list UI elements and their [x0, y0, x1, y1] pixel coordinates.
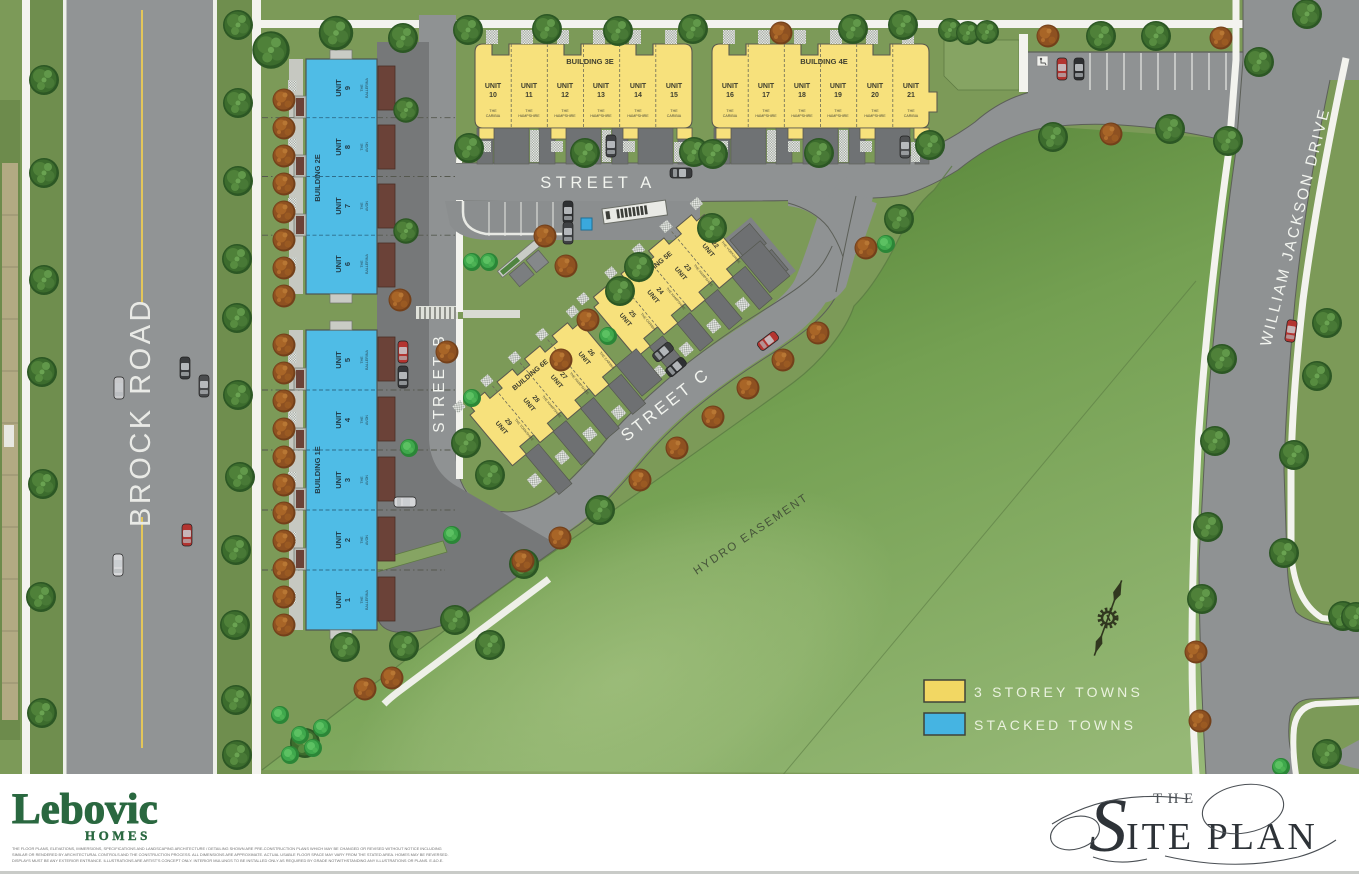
- svg-text:18: 18: [798, 92, 806, 99]
- svg-text:7: 7: [343, 204, 352, 208]
- svg-text:UNIT: UNIT: [630, 83, 647, 90]
- svg-text:THE: THE: [360, 84, 364, 92]
- svg-text:11: 11: [525, 92, 533, 99]
- svg-text:UNIT: UNIT: [593, 83, 610, 90]
- svg-text:10: 10: [489, 92, 497, 99]
- svg-text:13: 13: [597, 92, 605, 99]
- svg-text:THE: THE: [360, 416, 364, 424]
- svg-text:21: 21: [907, 92, 915, 99]
- svg-text:HOMES: HOMES: [85, 828, 151, 843]
- svg-text:14: 14: [634, 92, 642, 99]
- svg-text:ITE PLAN: ITE PLAN: [1126, 816, 1318, 858]
- svg-text:THE: THE: [360, 536, 364, 544]
- svg-text:15: 15: [670, 92, 678, 99]
- svg-text:THE: THE: [561, 109, 569, 113]
- svg-text:UNIT: UNIT: [334, 138, 343, 156]
- svg-text:UNIT: UNIT: [334, 411, 343, 429]
- svg-text:THE: THE: [907, 109, 915, 113]
- svg-text:3: 3: [343, 478, 352, 482]
- svg-text:THE: THE: [597, 109, 605, 113]
- svg-text:HAMPSHIRE: HAMPSHIRE: [827, 114, 849, 118]
- svg-text:THE: THE: [871, 109, 879, 113]
- svg-text:THE: THE: [489, 109, 497, 113]
- svg-text:THE: THE: [360, 143, 364, 151]
- svg-text:8: 8: [343, 145, 352, 149]
- svg-text:BALLERINA: BALLERINA: [365, 590, 369, 610]
- svg-text:12: 12: [561, 92, 569, 99]
- svg-text:BALLERINA: BALLERINA: [365, 78, 369, 98]
- svg-text:HAMPSHIRE: HAMPSHIRE: [590, 114, 612, 118]
- svg-text:20: 20: [871, 92, 879, 99]
- svg-text:UNIT: UNIT: [485, 83, 502, 90]
- svg-text:UNIT: UNIT: [334, 351, 343, 369]
- svg-text:THE: THE: [1153, 791, 1199, 807]
- svg-text:UNIT: UNIT: [758, 83, 775, 90]
- svg-text:THE: THE: [360, 202, 364, 210]
- svg-text:AVON: AVON: [365, 475, 369, 485]
- svg-text:CARIBIA: CARIBIA: [667, 114, 682, 118]
- svg-text:16: 16: [726, 92, 734, 99]
- svg-text:AVON: AVON: [365, 201, 369, 211]
- svg-text:UNIT: UNIT: [903, 83, 920, 90]
- svg-text:THE: THE: [670, 109, 678, 113]
- svg-text:BUILDING 3E: BUILDING 3E: [566, 57, 614, 66]
- svg-text:17: 17: [762, 92, 770, 99]
- svg-text:UNIT: UNIT: [521, 83, 538, 90]
- svg-text:BUILDING 4E: BUILDING 4E: [800, 57, 848, 66]
- svg-text:THE: THE: [762, 109, 770, 113]
- svg-text:THE: THE: [634, 109, 642, 113]
- svg-text:BALLERINA: BALLERINA: [365, 350, 369, 370]
- svg-text:UNIT: UNIT: [334, 531, 343, 549]
- svg-text:UNIT: UNIT: [867, 83, 884, 90]
- svg-text:S: S: [1089, 784, 1127, 868]
- svg-text:AVON: AVON: [365, 142, 369, 152]
- svg-text:CARIBIA: CARIBIA: [486, 114, 501, 118]
- svg-text:HAMPSHIRE: HAMPSHIRE: [791, 114, 813, 118]
- svg-text:BUILDING 2E: BUILDING 2E: [313, 154, 322, 202]
- svg-text:DISPLAYS MUST BE ANY EXTERIOR: DISPLAYS MUST BE ANY EXTERIOR ENTRANCE. …: [12, 858, 443, 863]
- svg-text:SIMILAR OR RENDERED BY ARCHITE: SIMILAR OR RENDERED BY ARCHITECTURAL CON…: [12, 852, 449, 857]
- svg-text:HAMPSHIRE: HAMPSHIRE: [755, 114, 777, 118]
- svg-text:9: 9: [343, 86, 352, 90]
- svg-text:UNIT: UNIT: [794, 83, 811, 90]
- svg-text:Lebovic: Lebovic: [12, 786, 158, 833]
- svg-text:UNIT: UNIT: [557, 83, 574, 90]
- svg-text:THE: THE: [798, 109, 806, 113]
- svg-text:6: 6: [343, 262, 352, 266]
- svg-text:UNIT: UNIT: [334, 197, 343, 215]
- svg-text:UNIT: UNIT: [722, 83, 739, 90]
- svg-text:BROCK ROAD: BROCK ROAD: [125, 297, 157, 527]
- svg-text:HAMPSHIRE: HAMPSHIRE: [554, 114, 576, 118]
- svg-text:BUILDING 1E: BUILDING 1E: [313, 446, 322, 494]
- svg-text:THE: THE: [360, 260, 364, 268]
- svg-text:AVON: AVON: [365, 535, 369, 545]
- svg-text:2: 2: [343, 538, 352, 542]
- svg-text:THE FLOOR PLANS, ELEVATIONS, I: THE FLOOR PLANS, ELEVATIONS, IMMERSIONS,…: [12, 846, 442, 851]
- svg-text:AVON: AVON: [365, 415, 369, 425]
- svg-text:UNIT: UNIT: [666, 83, 683, 90]
- svg-text:THE: THE: [360, 476, 364, 484]
- svg-text:HAMPSHIRE: HAMPSHIRE: [518, 114, 540, 118]
- svg-text:BALLERINA: BALLERINA: [365, 254, 369, 274]
- svg-text:STREET A: STREET A: [540, 174, 655, 192]
- svg-text:CARIBIA: CARIBIA: [904, 114, 919, 118]
- svg-text:UNIT: UNIT: [334, 255, 343, 273]
- svg-text:UNIT: UNIT: [334, 471, 343, 489]
- svg-text:UNIT: UNIT: [334, 79, 343, 97]
- svg-text:THE: THE: [360, 356, 364, 364]
- svg-text:1: 1: [343, 598, 352, 602]
- svg-text:THE: THE: [360, 596, 364, 604]
- svg-text:UNIT: UNIT: [830, 83, 847, 90]
- svg-text:19: 19: [834, 92, 842, 99]
- svg-text:5: 5: [343, 358, 352, 362]
- svg-text:CARIBIA: CARIBIA: [723, 114, 738, 118]
- svg-text:THE: THE: [525, 109, 533, 113]
- svg-text:3 STOREY TOWNS: 3 STOREY TOWNS: [974, 684, 1143, 700]
- svg-text:STACKED TOWNS: STACKED TOWNS: [974, 717, 1136, 733]
- svg-text:HAMPSHIRE: HAMPSHIRE: [864, 114, 886, 118]
- svg-text:HAMPSHIRE: HAMPSHIRE: [627, 114, 649, 118]
- svg-text:THE: THE: [834, 109, 842, 113]
- svg-text:UNIT: UNIT: [334, 591, 343, 609]
- svg-text:THE: THE: [726, 109, 734, 113]
